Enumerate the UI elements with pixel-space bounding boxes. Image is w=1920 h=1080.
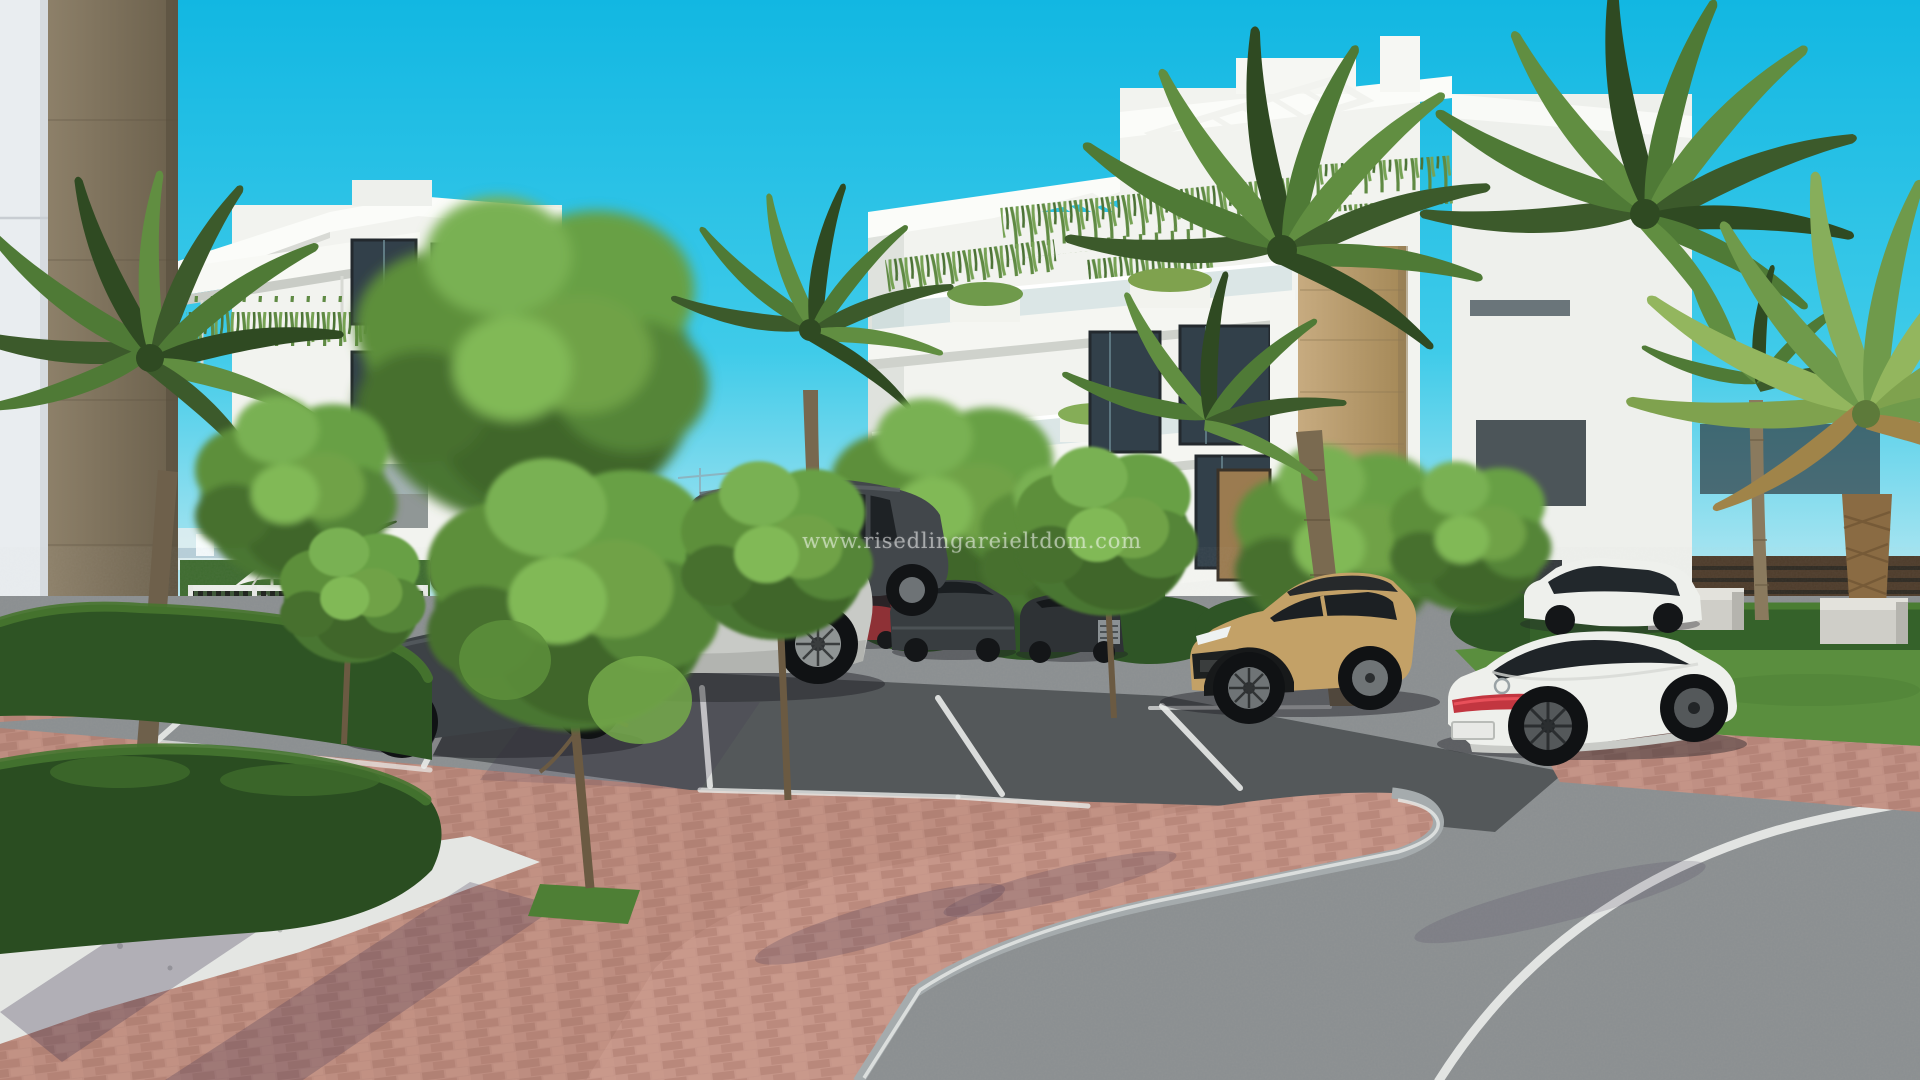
watermark-text: www.risedlingareieltdom.com — [802, 529, 1142, 553]
architectural-render: www.risedlingareieltdom.com — [0, 0, 1920, 1080]
